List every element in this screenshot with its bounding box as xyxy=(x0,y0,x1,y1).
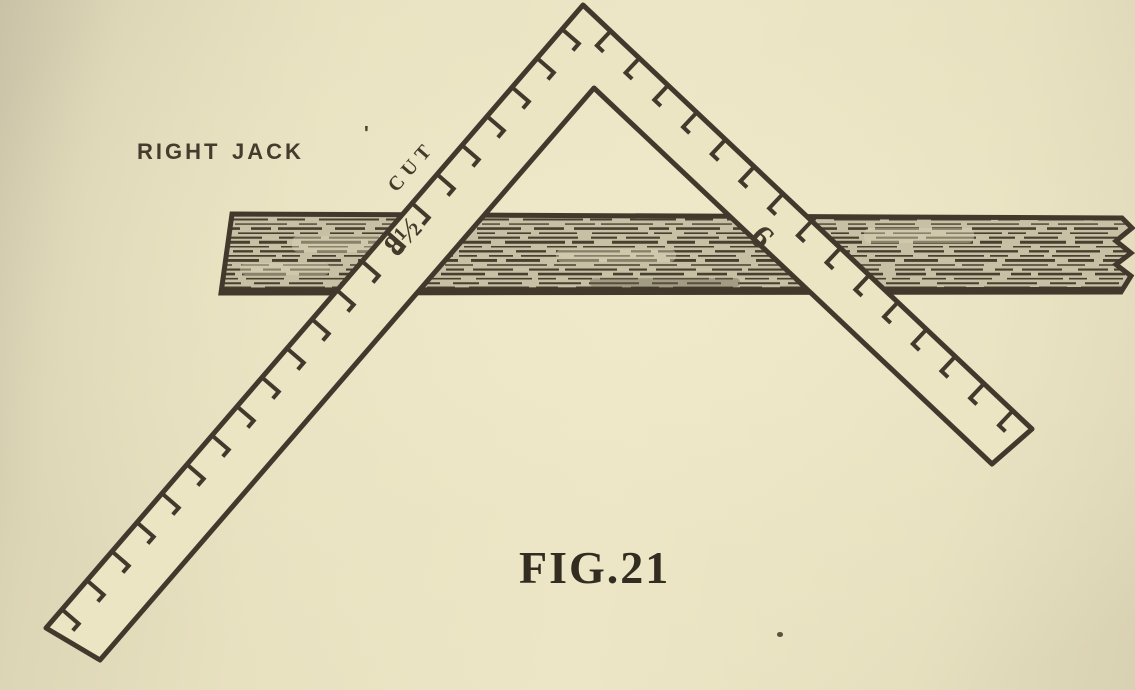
stray-ink-mark: ' xyxy=(364,124,369,144)
figure-title-label: Right Jack xyxy=(137,133,304,164)
book-figure-page: Right Jack ' Cut 8½ 9 FIG.21 xyxy=(0,0,1135,690)
ink-dot-speck xyxy=(777,632,783,637)
figure-caption: FIG.21 xyxy=(519,545,670,591)
